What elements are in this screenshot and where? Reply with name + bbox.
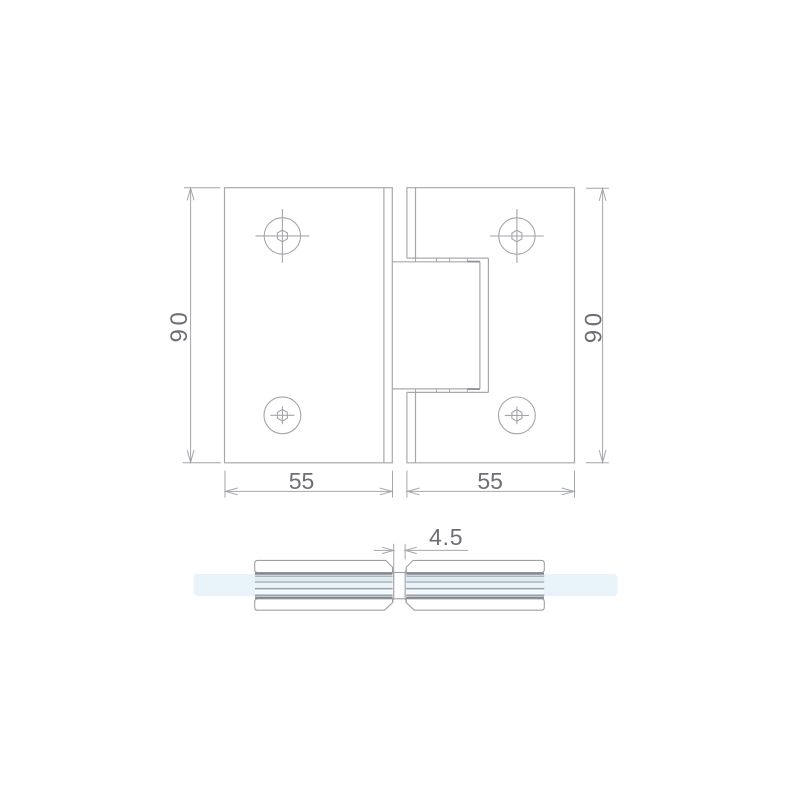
svg-text:55: 55 — [477, 468, 503, 494]
svg-text:90: 90 — [166, 309, 193, 343]
svg-text:55: 55 — [289, 468, 315, 494]
svg-text:4.5: 4.5 — [429, 524, 463, 550]
svg-text:90: 90 — [580, 309, 607, 343]
